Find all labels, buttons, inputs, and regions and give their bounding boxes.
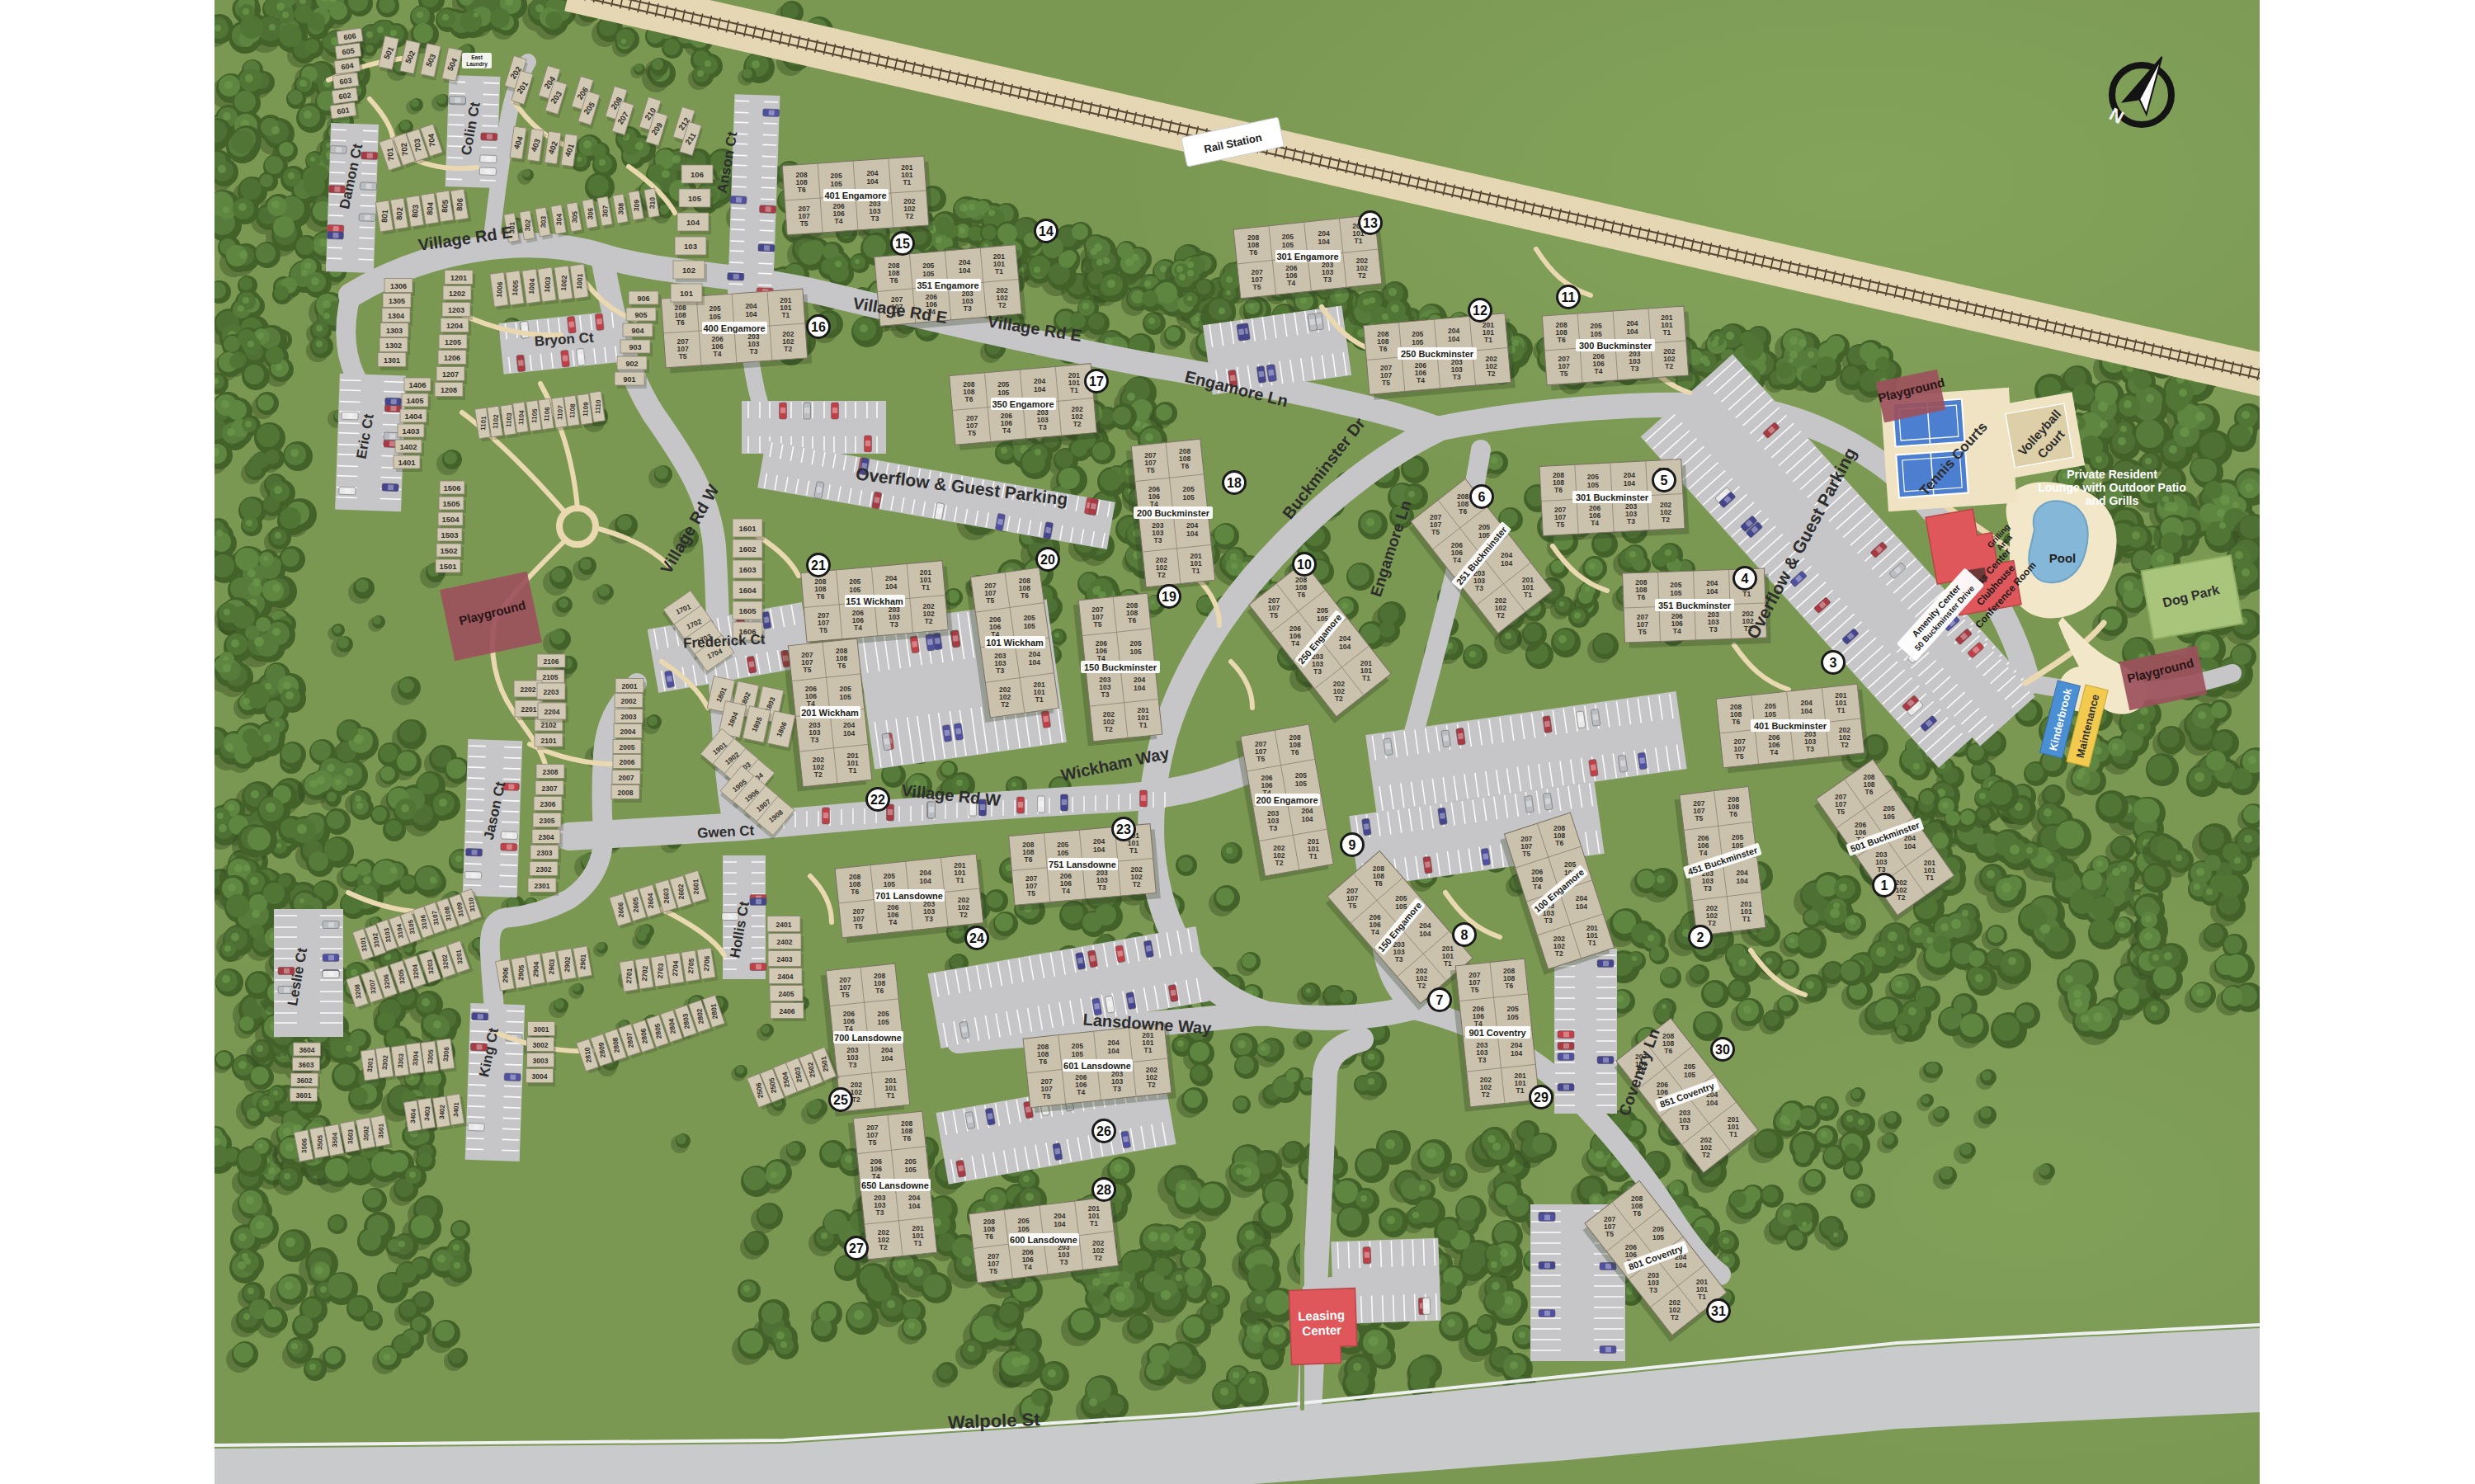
- svg-text:1404: 1404: [404, 412, 422, 421]
- svg-text:1107: 1107: [556, 405, 564, 420]
- svg-text:204104: 204104: [1054, 1212, 1065, 1228]
- svg-text:205105: 205105: [884, 872, 895, 888]
- svg-text:604: 604: [341, 61, 354, 71]
- svg-text:700 Lansdowne: 700 Lansdowne: [834, 1033, 902, 1043]
- svg-text:2006: 2006: [620, 758, 635, 766]
- svg-text:and Grills: and Grills: [2086, 494, 2139, 507]
- svg-text:204104: 204104: [745, 302, 757, 318]
- svg-text:205105: 205105: [1587, 473, 1599, 489]
- svg-text:204104: 204104: [843, 721, 855, 737]
- svg-text:2201: 2201: [521, 705, 537, 714]
- svg-text:205105: 205105: [709, 304, 720, 321]
- svg-text:200 Buckminster: 200 Buckminster: [1137, 508, 1210, 518]
- svg-text:21: 21: [811, 558, 826, 572]
- svg-text:205105: 205105: [1732, 833, 1743, 850]
- svg-text:12: 12: [1473, 304, 1487, 318]
- svg-text:2602: 2602: [676, 883, 686, 900]
- svg-text:1109: 1109: [582, 402, 590, 417]
- svg-text:351 Engamore: 351 Engamore: [917, 280, 978, 290]
- svg-text:301 Buckminster: 301 Buckminster: [1576, 492, 1649, 502]
- svg-text:204104: 204104: [1034, 377, 1045, 393]
- svg-text:2906: 2906: [501, 967, 510, 983]
- svg-text:1601: 1601: [738, 524, 757, 533]
- svg-text:6: 6: [1478, 490, 1486, 504]
- svg-text:205105: 205105: [904, 1157, 916, 1174]
- svg-text:Walpole St: Walpole St: [948, 1409, 1041, 1433]
- svg-text:204104: 204104: [1301, 807, 1313, 823]
- svg-text:2703: 2703: [656, 963, 665, 979]
- svg-text:205105: 205105: [1765, 702, 1776, 718]
- svg-text:205105: 205105: [1182, 485, 1194, 502]
- svg-text:802: 802: [394, 207, 404, 220]
- svg-text:3001: 3001: [534, 1025, 549, 1034]
- svg-text:401 Buckminster: 401 Buckminster: [1754, 721, 1827, 731]
- svg-text:5: 5: [1661, 473, 1668, 488]
- svg-text:1205: 1205: [445, 338, 461, 346]
- svg-text:1405: 1405: [406, 396, 424, 405]
- svg-text:204104: 204104: [1706, 579, 1718, 596]
- svg-text:204104: 204104: [1576, 894, 1587, 911]
- svg-text:3602: 3602: [297, 1076, 313, 1085]
- svg-text:2203: 2203: [544, 688, 559, 696]
- svg-text:1602: 1602: [738, 544, 756, 554]
- svg-text:27: 27: [849, 1241, 864, 1256]
- svg-text:704: 704: [426, 133, 436, 148]
- svg-text:1403: 1403: [402, 426, 419, 436]
- svg-text:3303: 3303: [397, 1053, 405, 1068]
- svg-text:307: 307: [601, 205, 609, 217]
- svg-text:204104: 204104: [1339, 634, 1351, 651]
- svg-text:3505: 3505: [316, 1134, 323, 1150]
- svg-text:805: 805: [440, 199, 450, 213]
- svg-text:1604: 1604: [738, 586, 757, 595]
- svg-text:350 Engamore: 350 Engamore: [992, 399, 1054, 409]
- svg-text:3404: 3404: [409, 1108, 417, 1124]
- svg-text:204104: 204104: [1624, 471, 1635, 488]
- svg-text:204104: 204104: [959, 258, 970, 275]
- svg-text:205105: 205105: [1024, 614, 1035, 630]
- svg-text:2001: 2001: [622, 682, 638, 690]
- svg-text:204104: 204104: [1511, 1041, 1522, 1058]
- svg-text:2105: 2105: [543, 673, 559, 681]
- svg-text:1101: 1101: [479, 416, 488, 431]
- svg-text:1: 1: [1881, 879, 1888, 893]
- svg-text:26: 26: [1096, 1124, 1111, 1138]
- svg-text:250 Buckminster: 250 Buckminster: [1401, 349, 1474, 359]
- svg-text:1203: 1203: [448, 306, 464, 314]
- svg-text:300 Buckminster: 300 Buckminster: [1579, 341, 1652, 351]
- svg-text:204104: 204104: [1736, 869, 1747, 885]
- svg-text:14: 14: [1039, 224, 1054, 238]
- svg-text:3002: 3002: [533, 1041, 549, 1049]
- svg-text:2302: 2302: [536, 865, 552, 874]
- svg-text:3403: 3403: [423, 1105, 431, 1121]
- svg-text:2008: 2008: [618, 789, 634, 797]
- svg-text:15: 15: [895, 237, 910, 251]
- svg-text:3402: 3402: [438, 1104, 446, 1119]
- svg-text:351 Buckminster: 351 Buckminster: [1658, 601, 1732, 610]
- svg-text:2401: 2401: [776, 921, 792, 929]
- svg-text:3: 3: [1830, 656, 1837, 670]
- svg-text:204104: 204104: [1448, 327, 1459, 343]
- svg-text:205105: 205105: [1129, 639, 1141, 656]
- svg-text:Private Resident: Private Resident: [2067, 468, 2157, 481]
- svg-text:2402: 2402: [777, 938, 793, 946]
- svg-text:3604: 3604: [299, 1046, 315, 1054]
- svg-text:2604: 2604: [646, 893, 655, 909]
- svg-text:204104: 204104: [1801, 699, 1813, 715]
- svg-text:105: 105: [688, 194, 702, 203]
- svg-text:2901: 2901: [578, 954, 587, 970]
- svg-text:205105: 205105: [922, 261, 934, 278]
- svg-text:1102: 1102: [492, 414, 500, 429]
- svg-text:200 Engamore: 200 Engamore: [1256, 795, 1318, 805]
- svg-text:804: 804: [425, 201, 435, 215]
- svg-text:25: 25: [833, 1093, 848, 1107]
- svg-text:204104: 204104: [1029, 650, 1040, 667]
- svg-text:204104: 204104: [1626, 319, 1638, 336]
- svg-text:3601: 3601: [296, 1091, 312, 1100]
- svg-text:2204: 2204: [544, 708, 560, 716]
- svg-text:205105: 205105: [1412, 330, 1423, 346]
- svg-text:1001: 1001: [575, 273, 584, 290]
- svg-text:1204: 1204: [446, 322, 463, 330]
- svg-text:8: 8: [1461, 928, 1468, 942]
- svg-text:101: 101: [680, 289, 694, 298]
- svg-text:1206: 1206: [444, 354, 460, 362]
- svg-text:2406: 2406: [780, 1007, 795, 1015]
- svg-text:2301: 2301: [535, 882, 550, 890]
- svg-text:904: 904: [631, 327, 643, 335]
- svg-text:803: 803: [410, 205, 420, 218]
- svg-text:701 Lansdowne: 701 Lansdowne: [875, 891, 943, 901]
- svg-text:28: 28: [1096, 1183, 1111, 1197]
- svg-text:103: 103: [684, 242, 697, 251]
- svg-text:1501: 1501: [439, 562, 457, 571]
- svg-text:1103: 1103: [505, 412, 513, 427]
- svg-text:1201: 1201: [450, 274, 467, 282]
- svg-text:150 Buckminster: 150 Buckminster: [1084, 662, 1157, 672]
- svg-text:18: 18: [1227, 476, 1242, 490]
- svg-text:205105: 205105: [1072, 1042, 1083, 1058]
- svg-text:1305: 1305: [389, 297, 405, 305]
- svg-text:2004: 2004: [620, 728, 636, 736]
- svg-text:205105: 205105: [849, 577, 860, 594]
- svg-text:Center: Center: [1302, 1322, 1341, 1338]
- svg-text:1506: 1506: [443, 483, 460, 492]
- svg-text:11: 11: [1562, 290, 1576, 304]
- svg-text:905: 905: [634, 311, 647, 319]
- svg-text:205105: 205105: [1506, 1005, 1518, 1021]
- svg-text:304: 304: [554, 213, 563, 225]
- svg-text:903: 903: [629, 343, 641, 351]
- svg-text:20: 20: [1040, 553, 1055, 567]
- svg-text:1208: 1208: [441, 386, 457, 394]
- svg-text:3503: 3503: [346, 1128, 354, 1144]
- svg-text:601: 601: [337, 106, 350, 115]
- svg-text:701: 701: [384, 147, 395, 162]
- svg-text:2307: 2307: [542, 784, 558, 793]
- svg-text:9: 9: [1349, 838, 1356, 852]
- svg-text:2306: 2306: [540, 800, 556, 808]
- svg-text:22: 22: [870, 793, 885, 807]
- svg-text:1502: 1502: [440, 546, 457, 555]
- svg-text:204104: 204104: [866, 169, 878, 186]
- svg-text:204104: 204104: [881, 1046, 893, 1062]
- svg-text:1003: 1003: [543, 276, 552, 293]
- svg-text:2101: 2101: [541, 737, 557, 745]
- svg-text:2003: 2003: [621, 713, 637, 721]
- svg-text:2303: 2303: [537, 849, 553, 857]
- svg-text:1302: 1302: [385, 342, 402, 350]
- svg-text:205105: 205105: [830, 172, 841, 188]
- svg-text:1304: 1304: [388, 312, 404, 320]
- svg-text:603: 603: [339, 76, 352, 86]
- svg-text:205105: 205105: [1590, 322, 1601, 338]
- svg-text:205105: 205105: [1684, 1062, 1695, 1079]
- svg-text:2905: 2905: [516, 964, 526, 981]
- svg-text:806: 806: [455, 198, 464, 211]
- svg-text:106: 106: [691, 170, 704, 179]
- svg-text:602: 602: [338, 91, 351, 101]
- svg-text:2005: 2005: [620, 743, 635, 751]
- svg-text:801: 801: [379, 209, 389, 223]
- svg-text:1505: 1505: [442, 499, 460, 508]
- svg-text:205105: 205105: [839, 685, 851, 701]
- svg-text:3506: 3506: [300, 1138, 308, 1153]
- svg-text:2702: 2702: [640, 965, 649, 982]
- svg-text:204104: 204104: [908, 1194, 920, 1210]
- svg-text:702: 702: [399, 142, 410, 156]
- svg-text:3401: 3401: [452, 1101, 460, 1117]
- svg-text:3304: 3304: [412, 1050, 420, 1066]
- svg-text:2007: 2007: [619, 774, 634, 782]
- svg-text:1605: 1605: [738, 606, 757, 615]
- svg-text:601 Lansdowne: 601 Lansdowne: [1063, 1061, 1131, 1071]
- svg-text:2304: 2304: [539, 833, 554, 841]
- svg-text:204104: 204104: [1318, 229, 1330, 246]
- svg-text:1110: 1110: [594, 399, 602, 414]
- svg-text:3004: 3004: [532, 1072, 548, 1081]
- svg-text:2603: 2603: [662, 888, 671, 904]
- svg-text:31: 31: [1711, 1304, 1726, 1318]
- svg-text:205105: 205105: [1295, 771, 1307, 788]
- svg-text:2903: 2903: [547, 959, 556, 975]
- svg-text:204104: 204104: [885, 574, 897, 591]
- svg-text:606: 606: [343, 31, 356, 41]
- svg-text:3301: 3301: [366, 1057, 375, 1072]
- svg-text:16: 16: [811, 320, 826, 334]
- svg-text:101 Wickham: 101 Wickham: [986, 638, 1044, 648]
- svg-text:301 Engamore: 301 Engamore: [1276, 252, 1338, 261]
- svg-text:303: 303: [539, 215, 547, 228]
- svg-text:204104: 204104: [1186, 521, 1198, 538]
- svg-text:1005: 1005: [511, 280, 520, 296]
- svg-text:205105: 205105: [1670, 581, 1681, 597]
- svg-text:24: 24: [969, 931, 984, 945]
- svg-text:3603: 3603: [299, 1061, 314, 1069]
- svg-text:205105: 205105: [1652, 1225, 1664, 1241]
- svg-text:1004: 1004: [527, 278, 536, 294]
- svg-text:2601: 2601: [691, 879, 700, 895]
- svg-text:205105: 205105: [1057, 841, 1068, 857]
- svg-text:205105: 205105: [877, 1010, 889, 1026]
- svg-text:Laundry: Laundry: [466, 61, 488, 68]
- svg-text:17: 17: [1089, 375, 1104, 389]
- svg-text:23: 23: [1116, 822, 1131, 836]
- svg-text:3504: 3504: [331, 1132, 338, 1147]
- svg-text:Lounge with Outdoor Patio: Lounge with Outdoor Patio: [2038, 481, 2186, 494]
- svg-text:29: 29: [1534, 1091, 1549, 1105]
- svg-text:205105: 205105: [1018, 1217, 1030, 1233]
- svg-text:204104: 204104: [920, 869, 931, 885]
- svg-text:1504: 1504: [441, 515, 460, 524]
- svg-text:2904: 2904: [531, 961, 540, 978]
- svg-text:1503: 1503: [441, 530, 458, 539]
- svg-text:204104: 204104: [1093, 837, 1105, 854]
- svg-text:13: 13: [1363, 216, 1378, 230]
- svg-text:2605: 2605: [631, 897, 640, 913]
- svg-text:Pool: Pool: [2049, 551, 2077, 565]
- svg-text:1202: 1202: [449, 290, 465, 298]
- svg-text:305: 305: [570, 210, 578, 223]
- svg-text:204104: 204104: [1134, 676, 1145, 692]
- svg-text:204104: 204104: [1904, 834, 1916, 850]
- svg-text:204104: 204104: [1108, 1039, 1120, 1055]
- svg-text:1301: 1301: [384, 356, 400, 365]
- svg-text:751 Lansdowne: 751 Lansdowne: [1049, 860, 1116, 869]
- svg-text:151 Wickham: 151 Wickham: [846, 596, 903, 606]
- svg-text:901 Coventry: 901 Coventry: [1468, 1028, 1526, 1038]
- svg-text:205105: 205105: [997, 380, 1009, 397]
- svg-text:30: 30: [1715, 1043, 1730, 1057]
- svg-text:1402: 1402: [399, 442, 417, 451]
- svg-text:1306: 1306: [390, 282, 407, 290]
- svg-text:4: 4: [1742, 572, 1749, 586]
- svg-text:2308: 2308: [543, 768, 559, 776]
- svg-text:205105: 205105: [1883, 804, 1894, 821]
- svg-text:605: 605: [342, 46, 355, 56]
- svg-text:19: 19: [1162, 590, 1176, 604]
- svg-text:205105: 205105: [1317, 606, 1328, 623]
- svg-text:302: 302: [523, 219, 531, 231]
- svg-text:3305: 3305: [427, 1048, 435, 1064]
- svg-text:2403: 2403: [777, 955, 793, 963]
- svg-text:3003: 3003: [533, 1057, 549, 1065]
- svg-text:104: 104: [686, 218, 700, 227]
- svg-text:2606: 2606: [616, 902, 625, 918]
- svg-text:1108: 1108: [568, 403, 577, 418]
- svg-text:10: 10: [1297, 558, 1312, 572]
- svg-text:401 Engamore: 401 Engamore: [824, 191, 886, 200]
- svg-text:1006: 1006: [495, 281, 504, 298]
- svg-text:1401: 1401: [398, 458, 416, 467]
- svg-text:902: 902: [625, 360, 638, 368]
- svg-text:600 Lansdowne: 600 Lansdowne: [1010, 1235, 1077, 1245]
- svg-text:310: 310: [648, 196, 656, 209]
- svg-text:901: 901: [623, 375, 635, 384]
- svg-text:400 Engamore: 400 Engamore: [703, 323, 765, 333]
- svg-text:1106: 1106: [543, 407, 551, 422]
- svg-text:2106: 2106: [544, 657, 559, 666]
- svg-text:308: 308: [616, 202, 625, 214]
- svg-text:Leasing: Leasing: [1298, 1307, 1345, 1323]
- svg-text:2902: 2902: [563, 956, 572, 973]
- svg-text:1406: 1406: [408, 380, 426, 389]
- svg-text:306: 306: [586, 207, 594, 219]
- svg-text:102: 102: [682, 266, 695, 275]
- svg-text:2202: 2202: [521, 685, 536, 694]
- svg-text:650 Lansdowne: 650 Lansdowne: [861, 1180, 929, 1190]
- svg-text:1104: 1104: [517, 410, 526, 425]
- svg-text:201 Wickham: 201 Wickham: [801, 708, 859, 718]
- svg-text:2704: 2704: [671, 960, 680, 977]
- svg-text:2404: 2404: [778, 973, 794, 981]
- svg-text:1207: 1207: [442, 370, 459, 379]
- svg-text:2405: 2405: [779, 990, 794, 998]
- svg-text:204104: 204104: [1501, 551, 1512, 568]
- svg-text:2705: 2705: [686, 958, 695, 974]
- svg-text:3302: 3302: [381, 1054, 389, 1070]
- svg-text:3502: 3502: [362, 1125, 370, 1141]
- svg-text:2701: 2701: [625, 968, 634, 984]
- svg-text:1603: 1603: [738, 565, 756, 574]
- svg-text:1105: 1105: [530, 408, 539, 423]
- svg-text:204104: 204104: [1419, 921, 1431, 938]
- svg-text:1002: 1002: [559, 275, 568, 291]
- svg-text:906: 906: [637, 294, 649, 303]
- svg-text:205105: 205105: [1478, 523, 1490, 539]
- svg-text:3501: 3501: [377, 1123, 384, 1138]
- svg-text:205105: 205105: [1282, 233, 1294, 249]
- svg-text:309: 309: [632, 199, 640, 211]
- svg-text:1303: 1303: [386, 327, 403, 335]
- svg-text:205105: 205105: [1395, 894, 1407, 911]
- svg-text:7: 7: [1436, 993, 1444, 1007]
- svg-text:2002: 2002: [621, 697, 637, 705]
- svg-text:703: 703: [412, 138, 423, 152]
- svg-text:2: 2: [1697, 930, 1704, 945]
- svg-text:2706: 2706: [702, 955, 711, 972]
- svg-text:3306: 3306: [442, 1046, 450, 1062]
- svg-text:East: East: [471, 54, 483, 60]
- svg-text:Gwen Ct: Gwen Ct: [697, 822, 755, 841]
- svg-text:2305: 2305: [540, 817, 555, 825]
